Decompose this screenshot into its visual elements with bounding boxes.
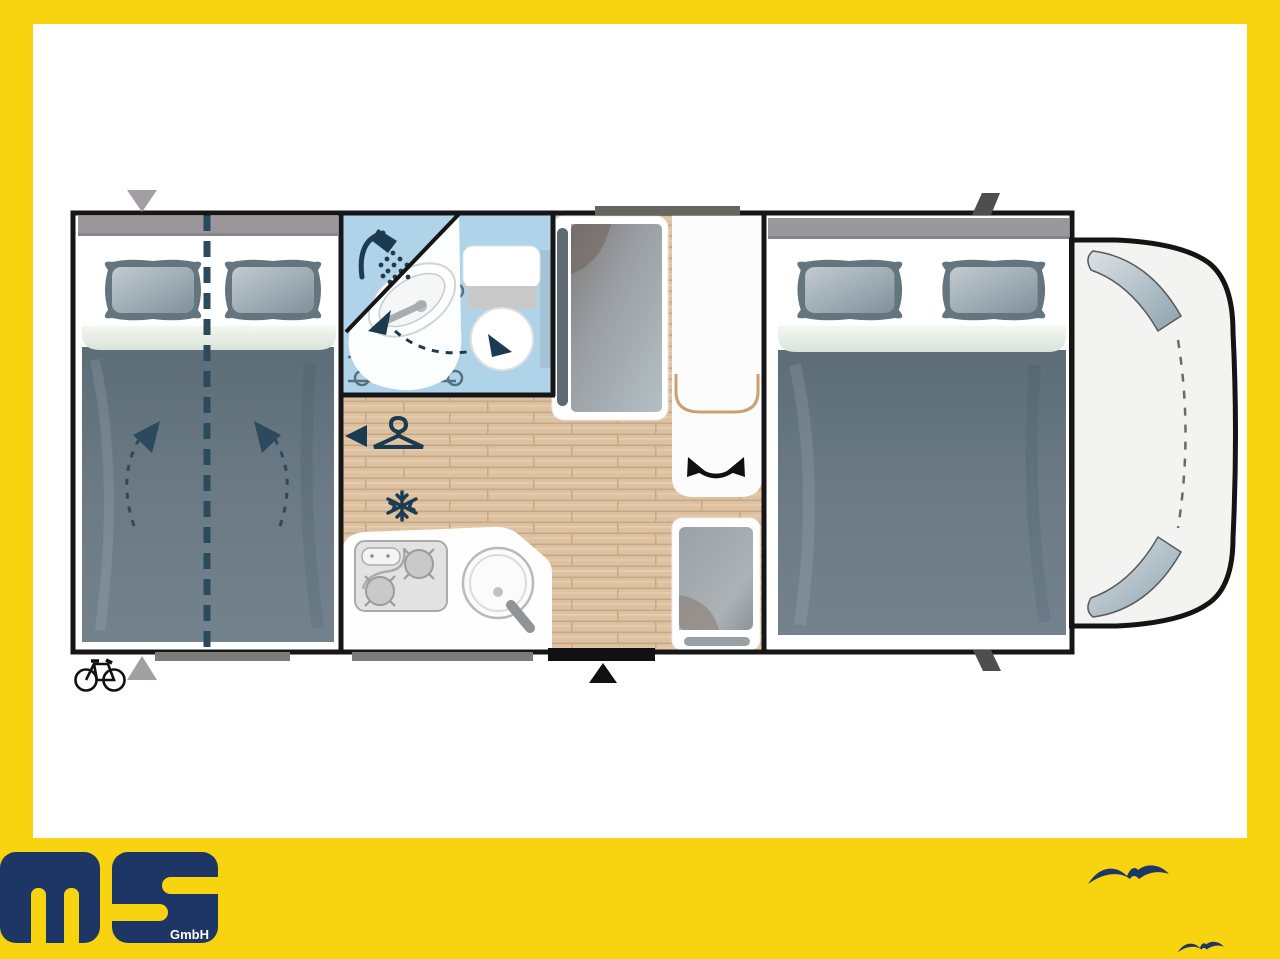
logo-m-glyph <box>0 852 100 948</box>
logo-s-glyph: GmbH <box>104 852 226 943</box>
roof-vent-bar <box>595 206 740 215</box>
bicycle-rack-icon <box>76 660 125 691</box>
pillow <box>797 260 902 321</box>
brand-band: GmbH REISEMOBILE Mobile Freizeit genieße… <box>0 838 1280 959</box>
entry-arrow <box>589 663 617 683</box>
entry-step-marker <box>548 648 655 661</box>
hob <box>355 541 447 611</box>
pillow <box>105 260 201 321</box>
driver-cab <box>1070 240 1236 626</box>
seagull-icon-small <box>1177 938 1225 959</box>
logo-gmbh-label: GmbH <box>170 927 209 942</box>
advert-canvas: GmbH REISEMOBILE Mobile Freizeit genieße… <box>0 0 1280 959</box>
window-bar-left <box>155 652 290 661</box>
marker-triangle-top <box>127 190 157 212</box>
toilet <box>463 246 554 370</box>
pillow <box>225 260 321 321</box>
marker-triangle-bottom <box>127 656 157 680</box>
window-bar-kitchen <box>352 652 533 661</box>
seagull-icon-large <box>1087 860 1171 896</box>
floorplan <box>0 0 1280 959</box>
rear-bed <box>78 215 338 650</box>
bench-seat <box>672 518 760 650</box>
fridge-cabinet <box>552 216 668 420</box>
entry-column <box>672 215 762 497</box>
kitchen-counter <box>341 527 552 652</box>
ms-logo: GmbH <box>0 852 230 949</box>
pillow <box>942 260 1045 321</box>
